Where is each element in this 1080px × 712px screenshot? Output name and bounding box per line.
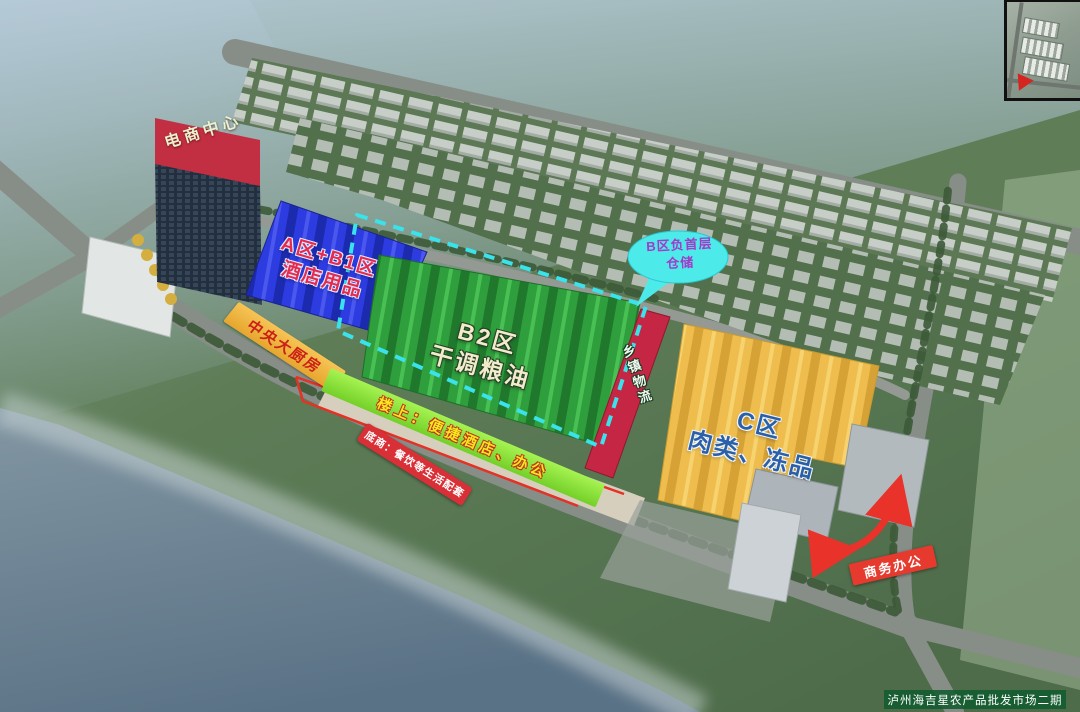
overview-minimap	[1004, 0, 1080, 101]
site-plan-scene: 电商中心 A区+B1区 酒店用品 B2区 干调粮油 B区负首层 仓储 乡镇物流 …	[0, 0, 1080, 712]
watermark-title: 泸州海吉星农产品批发市场二期	[884, 690, 1066, 709]
ecommerce-tower-body	[155, 163, 262, 305]
basement-callout-label: B区负首层 仓储	[629, 234, 731, 276]
minimap-buildings	[1022, 17, 1060, 39]
